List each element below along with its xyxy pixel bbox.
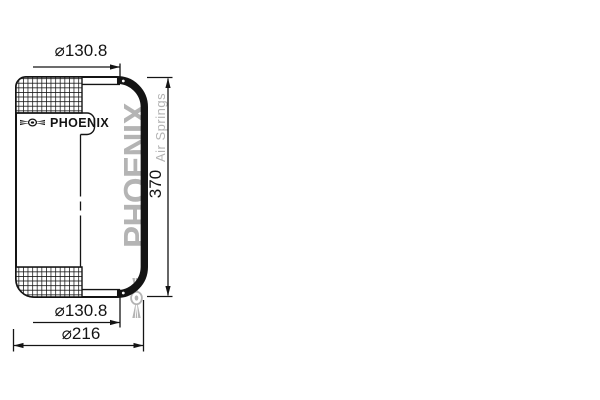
phoenix-wing-icon [20, 117, 45, 128]
logo-tab: PHOENIX [20, 115, 109, 130]
dim-arrow-outer-diameter-right [134, 343, 144, 348]
top-bead-marker-dot [122, 80, 125, 83]
bottom-diameter-label: ⌀130.8 [40, 302, 122, 320]
dim-arrow-outer-diameter-left [14, 343, 24, 348]
top-crosshatch-band [16, 77, 82, 113]
technical-drawing-canvas: PHOENIX Air Springs [0, 0, 600, 400]
dim-arrow-top-diameter [110, 64, 120, 69]
dim-arrow-height-bottom [165, 286, 170, 296]
outer-diameter-label: ⌀216 [40, 325, 122, 343]
bottom-bead-marker-dot [122, 292, 125, 295]
dim-arrow-height-top [165, 78, 170, 88]
bottom-crosshatch-band [16, 267, 82, 297]
top-diameter-label: ⌀130.8 [40, 42, 122, 60]
height-label: 370 [147, 164, 165, 204]
logo-brand-text: PHOENIX [50, 116, 109, 130]
right-bead-band [117, 81, 144, 293]
